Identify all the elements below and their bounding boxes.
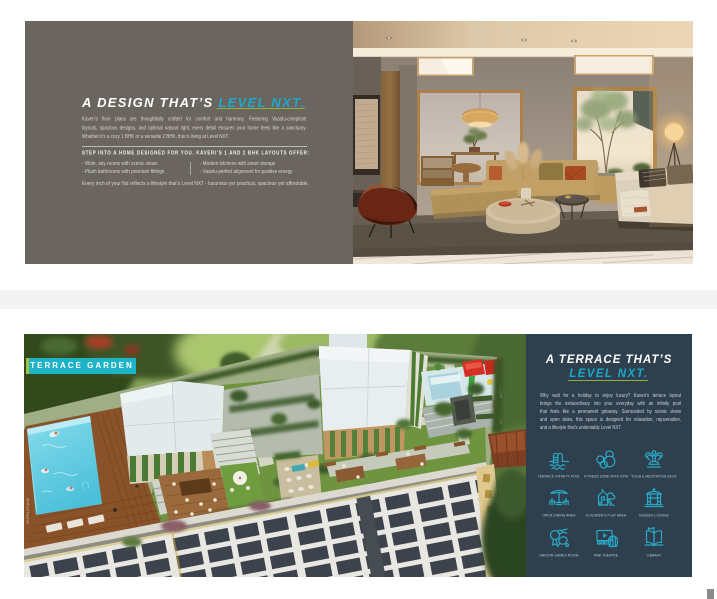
svg-text:SKIPPA STUDIO: SKIPPA STUDIO [26,497,30,524]
